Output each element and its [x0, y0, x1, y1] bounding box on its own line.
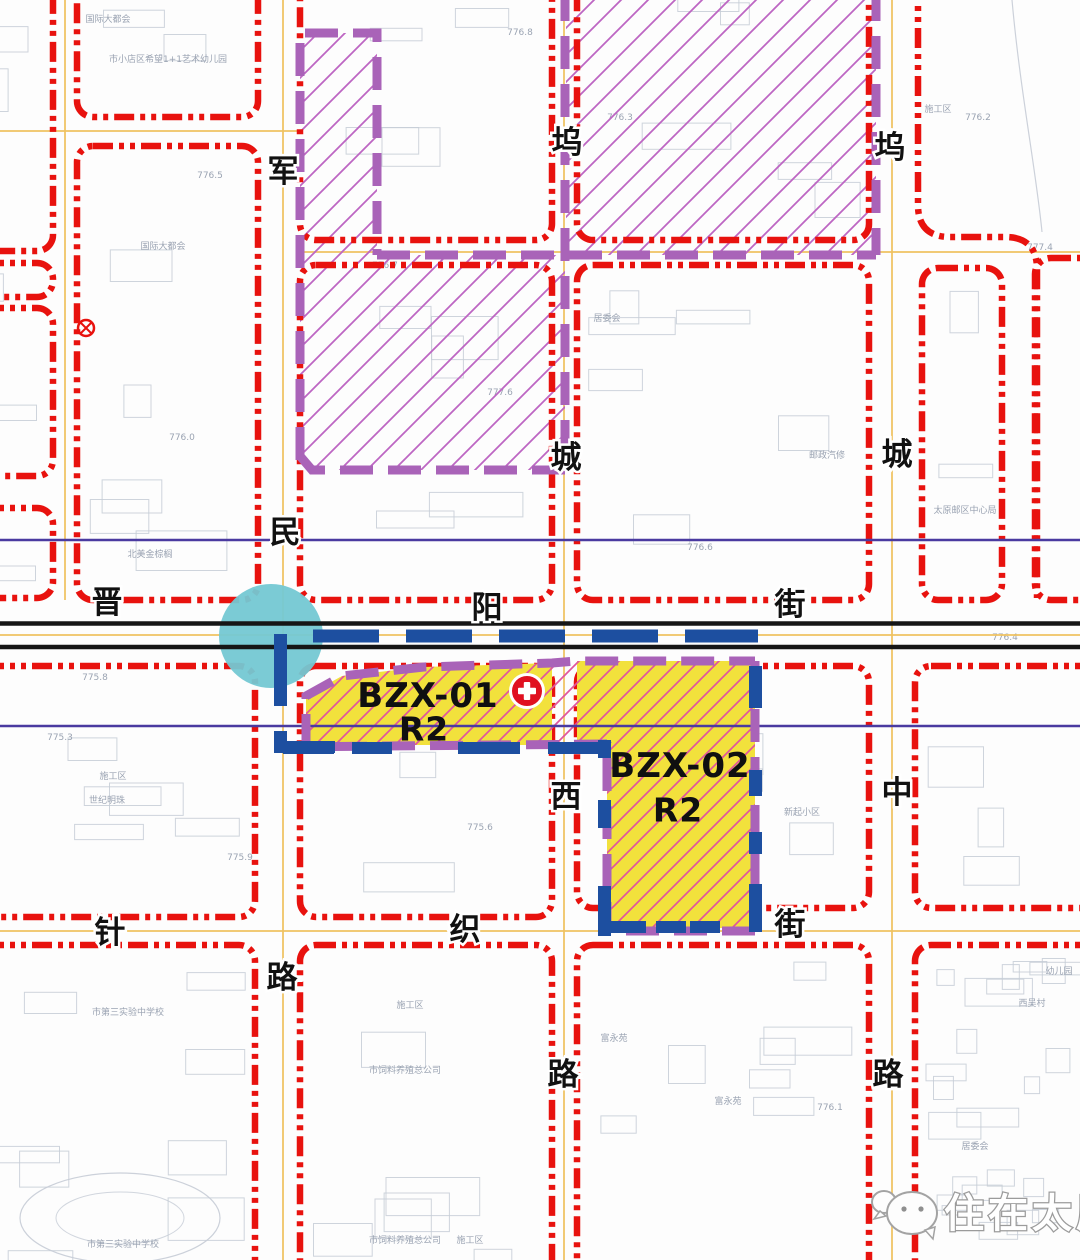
boundary-blue-bar-vertical [274, 634, 287, 706]
background-map-label: 世纪明珠 [89, 794, 125, 806]
watermark-bubble-large-icon [887, 1192, 937, 1234]
building-outline [601, 1116, 636, 1133]
boundary-blue-bar [656, 921, 686, 933]
metro-line-dash [499, 630, 565, 643]
metro-line-dash [685, 630, 758, 643]
building-outline [987, 979, 1024, 994]
metro-station-circle [219, 584, 323, 688]
street-label-jinyang-street: 晋 [92, 585, 123, 621]
building-outline [382, 128, 440, 167]
watermark-eye-icon [918, 1206, 923, 1211]
road-block-outline [300, 945, 552, 1260]
road-marker-cross-icon [80, 322, 92, 334]
background-map-label: 市第三实验中学校 [87, 1238, 159, 1250]
road-block-outline [77, 146, 258, 600]
boundary-blue-bar [458, 742, 520, 754]
building-outline [937, 970, 954, 986]
building-outline [669, 1046, 706, 1084]
building-outline [400, 752, 436, 777]
background-map-label: 市饲料养殖总公司 [369, 1234, 441, 1246]
background-map-label: 776.1 [817, 1103, 843, 1113]
building-outline [764, 1027, 852, 1055]
planning-map: 国际大都会市小店区希望1+1艺术幼儿园776.5国际大都会776.8776.3施… [0, 0, 1080, 1260]
background-map-label: 775.6 [467, 823, 493, 833]
boundary-blue-bar [749, 832, 762, 854]
building-outline [929, 1112, 981, 1139]
background-map-label: 居委会 [593, 312, 620, 324]
background-map-label: 施工区 [396, 999, 423, 1011]
watermark: 住在太原 [872, 1191, 1080, 1239]
background-map-label: 富永苑 [714, 1095, 741, 1107]
street-label-wucheng-middle-road: 中 [882, 775, 913, 811]
street-label-wucheng-west-road: 西 [551, 779, 582, 815]
background-map-label: 北美金棕榈 [127, 548, 172, 560]
bzx-road-strip-hatch [552, 661, 577, 745]
road-block-outline [1035, 258, 1080, 600]
building-outline [386, 1178, 480, 1216]
hatched-zone-c [566, 0, 876, 255]
background-map-label: 邮政汽修 [809, 449, 845, 461]
boundary-blue-bar [352, 742, 392, 754]
background-map-label: 施工区 [99, 770, 126, 782]
background-map-label: 市饲料养殖总公司 [369, 1064, 441, 1076]
street-label-wucheng-west-road: 路 [548, 1057, 580, 1093]
road-block-outline [0, 263, 53, 297]
building-outline [24, 992, 76, 1013]
building-outline [362, 1032, 426, 1067]
building-outline [90, 500, 149, 534]
building-outline [377, 511, 455, 528]
background-map-label: 国际大都会 [140, 240, 185, 252]
building-outline [790, 823, 834, 855]
building-outline [1046, 1049, 1070, 1073]
building-outline [760, 1038, 795, 1064]
background-map-label: 776.6 [687, 543, 713, 553]
building-outline [168, 1198, 244, 1241]
background-map-label: 太原邮区中心局 [933, 504, 996, 516]
building-outline [0, 274, 3, 301]
building-outline [110, 250, 172, 282]
background-map-label: 施工区 [924, 103, 951, 115]
hospital-cross-icon [524, 682, 530, 700]
building-outline [168, 1141, 226, 1175]
building-outline [957, 1029, 977, 1053]
building-outline [375, 1199, 431, 1238]
street-label-wucheng-middle-road: 路 [873, 1057, 905, 1093]
boundary-blue-bar [690, 921, 720, 933]
watermark-bubble-tail2-icon [925, 1227, 935, 1239]
boundary-blue-bar [598, 800, 611, 828]
building-outline [68, 738, 117, 761]
building-outline [364, 863, 455, 892]
building-outline [175, 818, 239, 836]
building-outline [455, 9, 508, 28]
background-map-label: 776.8 [507, 28, 533, 38]
background-map-label: 775.3 [47, 733, 73, 743]
building-outline [957, 1108, 1019, 1127]
building-outline [0, 566, 36, 581]
zone-code-bzx-02: R2 [653, 791, 703, 830]
street-label-jinyang-street: 街 [774, 587, 806, 623]
building-outline [102, 480, 162, 513]
background-map-label: 市第三实验中学校 [92, 1006, 164, 1018]
zone-label-bzx-02: BZX-02 [609, 746, 750, 786]
road-block-outline [577, 265, 869, 600]
building-outline [186, 1050, 245, 1075]
street-label-junmin-road: 民 [270, 515, 301, 551]
road-block-outline [0, 508, 53, 598]
street-label-zhenzhi-street: 针 [95, 915, 126, 951]
street-label-junmin-road: 路 [267, 960, 299, 996]
background-map-label: 775.8 [82, 673, 108, 683]
hatched-zone-a [300, 33, 377, 255]
background-map-label: 国际大都会 [85, 13, 130, 25]
building-outline [939, 464, 993, 478]
street-label-wucheng-west-road: 坞 [552, 125, 583, 161]
building-outline [75, 824, 144, 839]
road-block-outline [922, 268, 1002, 600]
building-outline [0, 1146, 59, 1162]
background-map-label: 776.5 [197, 171, 223, 181]
road-block-outline [0, 666, 255, 917]
watermark-eye-icon [901, 1206, 906, 1211]
contour-line [1012, 0, 1042, 232]
background-map-label: 775.9 [227, 853, 253, 863]
background-map-label: 施工区 [456, 1234, 483, 1246]
building-outline [1024, 1077, 1039, 1094]
zone-code-bzx-01: R2 [399, 710, 449, 749]
building-outline [1002, 965, 1019, 990]
street-label-junmin-road: 军 [268, 154, 299, 190]
hatched-zone-b [300, 255, 565, 470]
boundary-blue-bar [749, 666, 762, 708]
street-label-wucheng-west-road: 城 [551, 440, 582, 476]
street-label-wucheng-middle-road: 坞 [875, 130, 906, 166]
building-outline [950, 291, 978, 332]
building-outline [794, 962, 826, 980]
hatched-planning-zones [300, 0, 876, 470]
building-outline [0, 405, 36, 420]
metro-line-dash [406, 630, 472, 643]
street-label-wucheng-middle-road: 城 [882, 437, 913, 473]
building-outline [754, 1097, 814, 1115]
building-outline [978, 808, 1004, 847]
building-outline [779, 416, 829, 451]
road-block-outline [0, 308, 53, 476]
stadium-track-outline [56, 1192, 184, 1244]
building-outline [928, 747, 983, 787]
building-outline [187, 973, 245, 991]
background-map-label: 市小店区希望1+1艺术幼儿园 [109, 53, 227, 65]
street-label-jinyang-street: 阳 [472, 590, 503, 626]
background-map-label: 居委会 [961, 1140, 988, 1152]
building-outline [314, 1224, 373, 1257]
building-outline [926, 1064, 966, 1081]
metro-line-dash [592, 630, 658, 643]
building-outline [0, 27, 28, 52]
metro-station-circle [219, 584, 323, 688]
building-outline [964, 857, 1020, 886]
metro-line-dash [313, 630, 379, 643]
boundary-blue-bar [749, 884, 762, 932]
building-outline [474, 1249, 512, 1260]
boundary-blue-bar [606, 921, 646, 933]
building-outline [429, 492, 523, 517]
boundary-blue-bar [749, 770, 762, 796]
building-outline [987, 1170, 1014, 1186]
background-map-label: 幼儿园 [1045, 965, 1072, 977]
building-outline [589, 369, 643, 390]
background-map-label: 776.2 [965, 113, 991, 123]
background-map-label: 776.0 [169, 433, 195, 443]
building-outline [934, 1076, 954, 1099]
background-map-label: 新起小区 [784, 806, 820, 818]
background-map-label: 西吴村 [1018, 997, 1045, 1009]
background-map-label: 富永苑 [600, 1032, 627, 1044]
planning-map-canvas: 国际大都会市小店区希望1+1艺术幼儿园776.5国际大都会776.8776.3施… [0, 0, 1080, 1260]
street-label-zhenzhi-street: 织 [450, 912, 481, 948]
building-outline [750, 1070, 791, 1088]
road-block-outline [0, 0, 53, 251]
street-label-zhenzhi-street: 街 [774, 907, 806, 943]
watermark-text: 住在太原 [944, 1191, 1080, 1237]
boundary-blue-bar [283, 742, 334, 754]
building-outline [0, 69, 8, 112]
building-outline [676, 310, 750, 324]
building-outline [124, 385, 151, 417]
